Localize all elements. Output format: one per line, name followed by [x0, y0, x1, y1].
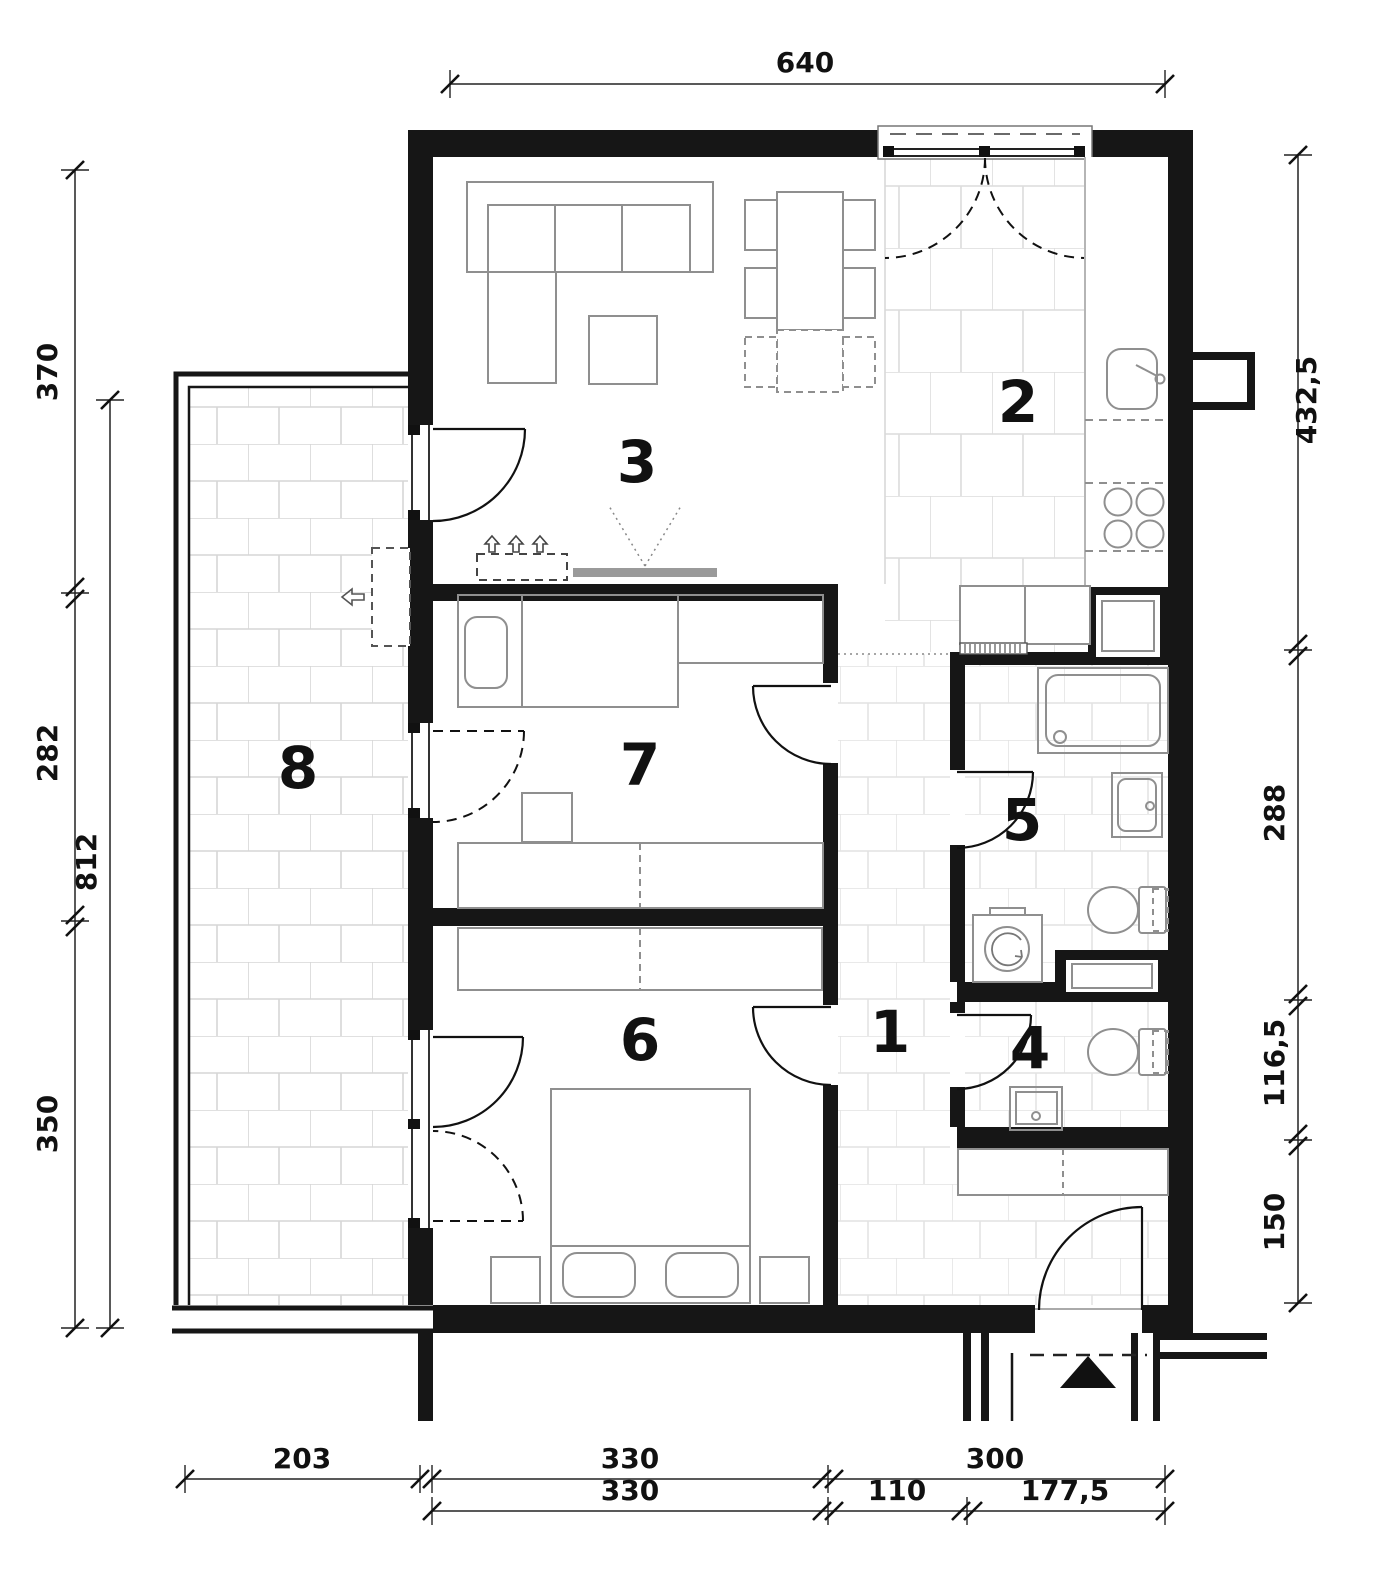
bed-single: [458, 595, 678, 707]
dim-bottom-203: 203: [273, 1442, 331, 1475]
floor-plan-canvas: 1 2 3 4 5 6 7 8 640 370 282 350 812 432,…: [0, 0, 1398, 1586]
desk-room7: [678, 595, 823, 663]
dim-left-350: 350: [31, 1095, 64, 1153]
floor-plan: 1 2 3 4 5 6 7 8 640 370 282 350 812 432,…: [0, 0, 1398, 1586]
room-label-2: 2: [998, 368, 1038, 436]
balcony-door-room6: [408, 1030, 523, 1228]
dim-right-288: 288: [1258, 784, 1291, 842]
balcony-door-living: [408, 425, 525, 521]
entrance-arrow-icon: [1060, 1356, 1116, 1388]
room-label-3: 3: [617, 428, 657, 496]
dim-right-150: 150: [1258, 1193, 1291, 1251]
hall-closet: [958, 1149, 1168, 1195]
wardrobe-room6: [458, 928, 822, 990]
dim-bottom-177-5: 177,5: [1021, 1474, 1110, 1507]
room-label-8: 8: [278, 734, 318, 802]
dim-bottom-300: 300: [966, 1442, 1024, 1475]
duct-shaft-bathroom: [1055, 950, 1168, 1002]
duct-shaft-kitchen: [1088, 587, 1168, 665]
dim-right-116-5: 116,5: [1258, 1019, 1291, 1108]
nightstand-room6-right: [760, 1257, 809, 1303]
dim-left-370: 370: [31, 343, 64, 401]
room-label-6: 6: [620, 1006, 660, 1074]
toilet-wc: [1088, 1029, 1168, 1075]
party-wall-stubs: [418, 1333, 1267, 1421]
room-label-4: 4: [1010, 1014, 1050, 1082]
dimension-top: 640: [441, 46, 1174, 98]
wc-floor-tiles: [965, 1002, 1168, 1127]
dim-left-812: 812: [70, 833, 103, 891]
dimension-left-overall: 812: [70, 391, 124, 1337]
balcony-floor-tiles: [190, 388, 408, 1305]
radiator: [960, 643, 1027, 654]
door-room7: [753, 686, 831, 764]
washing-machine: [973, 908, 1042, 982]
bed-double: [551, 1089, 750, 1303]
coffee-table: [589, 316, 657, 384]
sideboard-dashed: [477, 554, 567, 580]
tv-icon: [573, 506, 717, 577]
dim-bottom-330b: 330: [601, 1474, 659, 1507]
nightstand-room7: [522, 793, 572, 842]
up-arrows-icon: [485, 536, 547, 552]
dim-bottom-330a: 330: [601, 1442, 659, 1475]
room-label-1: 1: [870, 998, 910, 1066]
door-room6: [753, 1007, 831, 1085]
dimension-right: 432,5 288 116,5 150: [1258, 146, 1323, 1312]
dimension-bottom-lower: 330 110 177,5: [423, 1474, 1174, 1525]
toilet-bathroom: [1088, 887, 1168, 933]
kitchen-lower-counter: [960, 586, 1090, 644]
dining-table: [745, 192, 875, 392]
room-label-5: 5: [1002, 786, 1042, 854]
balcony-door-room7: [408, 723, 524, 822]
kitchen-floor-tiles: [885, 157, 1085, 652]
dim-bottom-110: 110: [868, 1474, 926, 1507]
dim-top-640: 640: [776, 46, 834, 79]
nightstand-room6-left: [491, 1257, 540, 1303]
dimension-left-outer: 370 282 350: [31, 161, 89, 1337]
dim-right-432-5: 432,5: [1290, 356, 1323, 445]
wardrobe-room7: [458, 843, 823, 908]
room-label-7: 7: [620, 731, 660, 799]
dim-left-282: 282: [31, 724, 64, 782]
